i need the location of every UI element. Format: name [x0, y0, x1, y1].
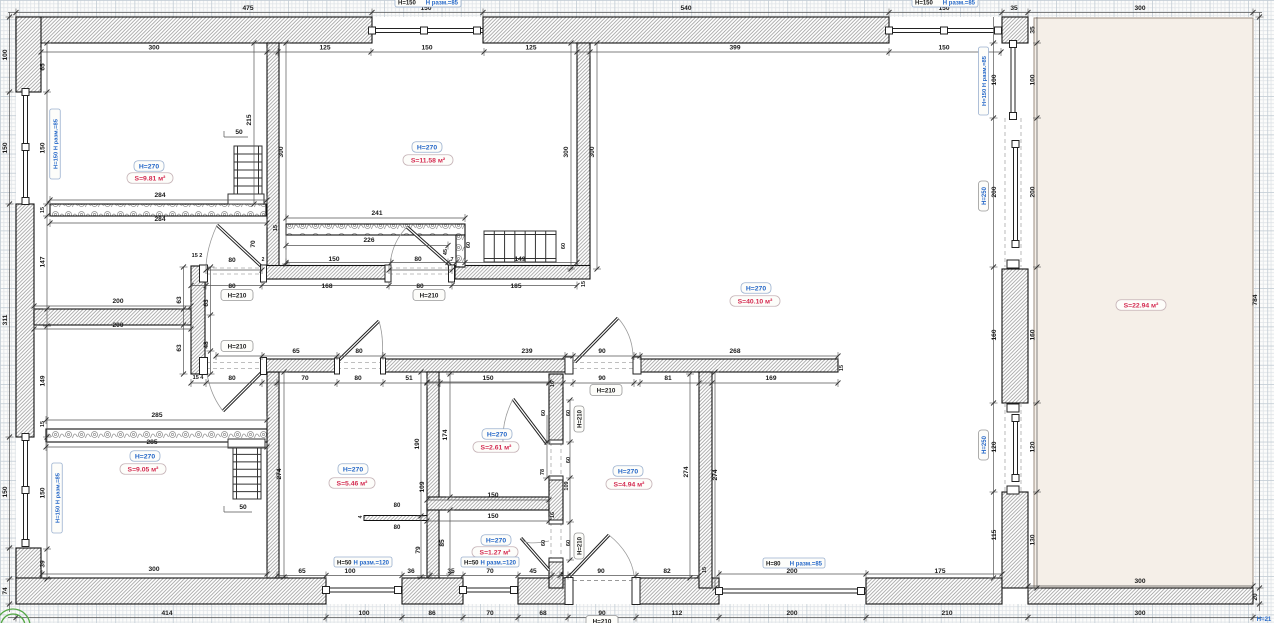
svg-text:16: 16: [550, 381, 556, 387]
svg-text:50: 50: [239, 504, 247, 511]
svg-text:300: 300: [1134, 5, 1145, 12]
svg-text:190: 190: [414, 438, 421, 449]
svg-text:60: 60: [466, 242, 472, 248]
svg-text:S=40.10 м²: S=40.10 м²: [738, 299, 773, 306]
svg-text:63: 63: [176, 344, 183, 352]
svg-text:60: 60: [566, 457, 572, 463]
svg-text:50: 50: [235, 129, 243, 136]
svg-text:70: 70: [301, 375, 309, 382]
svg-text:7: 7: [450, 257, 453, 263]
svg-text:300: 300: [563, 146, 570, 157]
svg-text:H=210: H=210: [593, 619, 612, 623]
svg-text:80: 80: [354, 375, 362, 382]
svg-text:78: 78: [540, 469, 546, 475]
svg-text:63: 63: [176, 296, 183, 304]
svg-text:8: 8: [561, 572, 564, 578]
svg-text:60: 60: [541, 410, 547, 416]
svg-text:70: 70: [486, 568, 494, 575]
svg-text:540: 540: [680, 5, 691, 12]
svg-text:90: 90: [598, 375, 606, 382]
svg-text:45: 45: [443, 249, 449, 255]
svg-text:S=11.58 м²: S=11.58 м²: [411, 158, 446, 165]
svg-text:241: 241: [371, 210, 382, 217]
svg-text:15: 15: [40, 421, 46, 427]
svg-text:H=270: H=270: [135, 454, 155, 461]
svg-text:H разм.=85: H разм.=85: [943, 0, 976, 6]
svg-text:215: 215: [246, 114, 253, 125]
svg-text:H=210: H=210: [578, 409, 584, 428]
svg-text:90: 90: [597, 568, 605, 575]
svg-text:311: 311: [2, 314, 9, 325]
svg-text:H разм.=120: H разм.=120: [480, 560, 516, 566]
svg-text:15: 15: [839, 365, 845, 371]
svg-text:60: 60: [541, 540, 547, 546]
svg-text:200: 200: [786, 568, 797, 575]
svg-text:300: 300: [1134, 578, 1145, 585]
svg-text:15 2: 15 2: [192, 253, 203, 259]
svg-text:39: 39: [40, 560, 47, 568]
svg-text:90: 90: [598, 348, 606, 355]
svg-text:239: 239: [521, 348, 532, 355]
svg-text:H=250: H=250: [982, 186, 988, 205]
svg-text:300: 300: [1134, 610, 1145, 617]
svg-text:H=210: H=210: [420, 293, 439, 300]
svg-text:80: 80: [416, 283, 424, 290]
svg-text:H=270: H=270: [618, 469, 638, 476]
svg-text:149: 149: [514, 256, 525, 263]
svg-text:115: 115: [991, 529, 998, 540]
svg-text:45: 45: [529, 568, 537, 575]
svg-text:100: 100: [358, 610, 369, 617]
svg-text:36: 36: [407, 568, 415, 575]
svg-text:150: 150: [2, 142, 9, 153]
svg-text:4: 4: [358, 515, 364, 518]
svg-text:81: 81: [664, 375, 672, 382]
svg-text:284: 284: [154, 216, 165, 223]
svg-text:174: 174: [442, 429, 449, 440]
svg-text:150: 150: [328, 256, 339, 263]
svg-text:274: 274: [683, 466, 690, 477]
svg-text:H=21: H=21: [1257, 617, 1272, 623]
svg-text:226: 226: [363, 237, 374, 244]
svg-text:169: 169: [765, 375, 776, 382]
svg-text:H разм.=85: H разм.=85: [426, 0, 459, 6]
svg-text:784: 784: [1252, 294, 1259, 305]
svg-text:150: 150: [421, 45, 432, 52]
svg-text:100: 100: [991, 74, 998, 85]
svg-text:70: 70: [250, 240, 257, 248]
svg-text:300: 300: [278, 146, 285, 157]
svg-text:150: 150: [487, 492, 498, 499]
svg-text:70: 70: [486, 610, 494, 617]
svg-text:147: 147: [40, 256, 47, 267]
svg-text:35: 35: [1010, 5, 1018, 12]
svg-text:S=1.27 м²: S=1.27 м²: [480, 550, 512, 557]
svg-text:H=270: H=270: [486, 538, 506, 545]
svg-text:120: 120: [1030, 441, 1037, 452]
svg-text:85: 85: [439, 539, 446, 547]
svg-text:H разм.=85: H разм.=85: [790, 561, 823, 567]
svg-text:80: 80: [394, 525, 401, 531]
svg-text:60: 60: [566, 540, 572, 546]
svg-text:S=9.81 м²: S=9.81 м²: [135, 176, 167, 183]
svg-text:268: 268: [729, 348, 740, 355]
svg-text:274: 274: [712, 469, 719, 480]
svg-text:65: 65: [298, 568, 306, 575]
svg-text:35: 35: [447, 568, 455, 575]
svg-text:H=50: H=50: [337, 560, 352, 566]
svg-text:51: 51: [405, 375, 413, 382]
svg-text:48: 48: [203, 341, 210, 349]
svg-text:200: 200: [786, 610, 797, 617]
svg-text:100: 100: [1030, 74, 1037, 85]
svg-text:300: 300: [148, 45, 159, 52]
svg-text:H=270: H=270: [139, 164, 159, 171]
svg-text:80: 80: [228, 375, 236, 382]
svg-text:H=210: H=210: [228, 293, 247, 300]
svg-text:100: 100: [2, 49, 9, 60]
svg-text:80: 80: [394, 503, 401, 509]
svg-text:16: 16: [550, 512, 556, 518]
svg-text:S=5.46 м²: S=5.46 м²: [337, 481, 369, 488]
svg-text:S=22.94 м²: S=22.94 м²: [1124, 303, 1159, 310]
svg-text:68: 68: [539, 610, 547, 617]
svg-text:112: 112: [672, 610, 683, 617]
svg-text:15: 15: [40, 207, 46, 213]
svg-text:200: 200: [112, 298, 123, 305]
svg-text:185: 185: [510, 283, 521, 290]
svg-text:80: 80: [355, 348, 363, 355]
svg-text:210: 210: [941, 610, 952, 617]
svg-text:399: 399: [729, 45, 740, 52]
svg-text:S=9.05 м²: S=9.05 м²: [128, 467, 160, 474]
svg-text:15: 15: [702, 567, 708, 573]
svg-text:H=210: H=210: [597, 388, 616, 395]
svg-text:150: 150: [2, 486, 9, 497]
svg-text:2: 2: [262, 257, 265, 263]
svg-text:125: 125: [319, 45, 330, 52]
svg-text:H=150 H разм.=85: H=150 H разм.=85: [53, 118, 59, 169]
svg-text:130: 130: [1030, 534, 1037, 545]
svg-text:149: 149: [40, 375, 47, 386]
svg-text:H=270: H=270: [417, 145, 437, 152]
svg-text:80: 80: [228, 257, 236, 264]
svg-text:285: 285: [146, 439, 157, 446]
svg-text:80: 80: [414, 256, 422, 263]
svg-text:109: 109: [564, 481, 570, 490]
svg-text:150: 150: [482, 375, 493, 382]
svg-text:168: 168: [321, 283, 332, 290]
svg-text:150: 150: [40, 142, 47, 153]
svg-text:H=270: H=270: [487, 432, 507, 439]
svg-text:H=150: H=150: [915, 0, 934, 6]
svg-text:H=270: H=270: [746, 286, 766, 293]
svg-text:15: 15: [273, 225, 279, 231]
svg-text:63: 63: [203, 299, 210, 307]
svg-text:S=4.94 м²: S=4.94 м²: [614, 482, 646, 489]
svg-text:H=80: H=80: [766, 561, 781, 567]
svg-text:200: 200: [991, 186, 998, 197]
svg-text:H=50: H=50: [464, 560, 479, 566]
svg-text:82: 82: [663, 568, 671, 575]
svg-text:65: 65: [292, 348, 300, 355]
svg-text:H=270: H=270: [343, 467, 363, 474]
svg-text:109: 109: [419, 481, 426, 492]
svg-text:H=150 H разм.=85: H=150 H разм.=85: [982, 55, 988, 106]
svg-text:65: 65: [40, 63, 47, 71]
svg-text:150: 150: [487, 513, 498, 520]
svg-text:284: 284: [154, 192, 165, 199]
svg-text:300: 300: [148, 566, 159, 573]
svg-text:300: 300: [589, 146, 596, 157]
svg-text:15 4: 15 4: [193, 375, 205, 381]
svg-text:150: 150: [938, 45, 949, 52]
svg-text:120: 120: [991, 441, 998, 452]
svg-text:H=210: H=210: [228, 344, 247, 351]
svg-text:475: 475: [242, 5, 253, 12]
svg-text:80: 80: [228, 283, 236, 290]
svg-text:175: 175: [934, 568, 945, 575]
svg-text:74: 74: [2, 587, 9, 595]
svg-text:125: 125: [525, 45, 536, 52]
svg-text:35: 35: [1030, 26, 1037, 34]
svg-text:160: 160: [991, 329, 998, 340]
svg-text:20: 20: [1252, 593, 1259, 601]
svg-text:H=250: H=250: [982, 435, 988, 454]
svg-text:H=150 H разм.=85: H=150 H разм.=85: [55, 472, 61, 523]
svg-text:H разм.=120: H разм.=120: [353, 560, 389, 566]
svg-text:S=2.61 м²: S=2.61 м²: [481, 445, 513, 452]
svg-text:H=150: H=150: [398, 0, 417, 6]
svg-text:160: 160: [1030, 329, 1037, 340]
svg-text:79: 79: [415, 546, 422, 554]
svg-text:274: 274: [276, 468, 283, 479]
svg-text:414: 414: [161, 610, 172, 617]
svg-text:H=210: H=210: [578, 536, 584, 555]
svg-text:60: 60: [566, 410, 572, 416]
svg-text:150: 150: [40, 487, 47, 498]
svg-text:200: 200: [112, 322, 123, 329]
svg-text:86: 86: [428, 610, 436, 617]
svg-text:200: 200: [1030, 186, 1037, 197]
svg-text:60: 60: [561, 243, 567, 249]
svg-text:15: 15: [581, 281, 587, 287]
svg-text:100: 100: [344, 568, 355, 575]
svg-text:285: 285: [151, 412, 162, 419]
